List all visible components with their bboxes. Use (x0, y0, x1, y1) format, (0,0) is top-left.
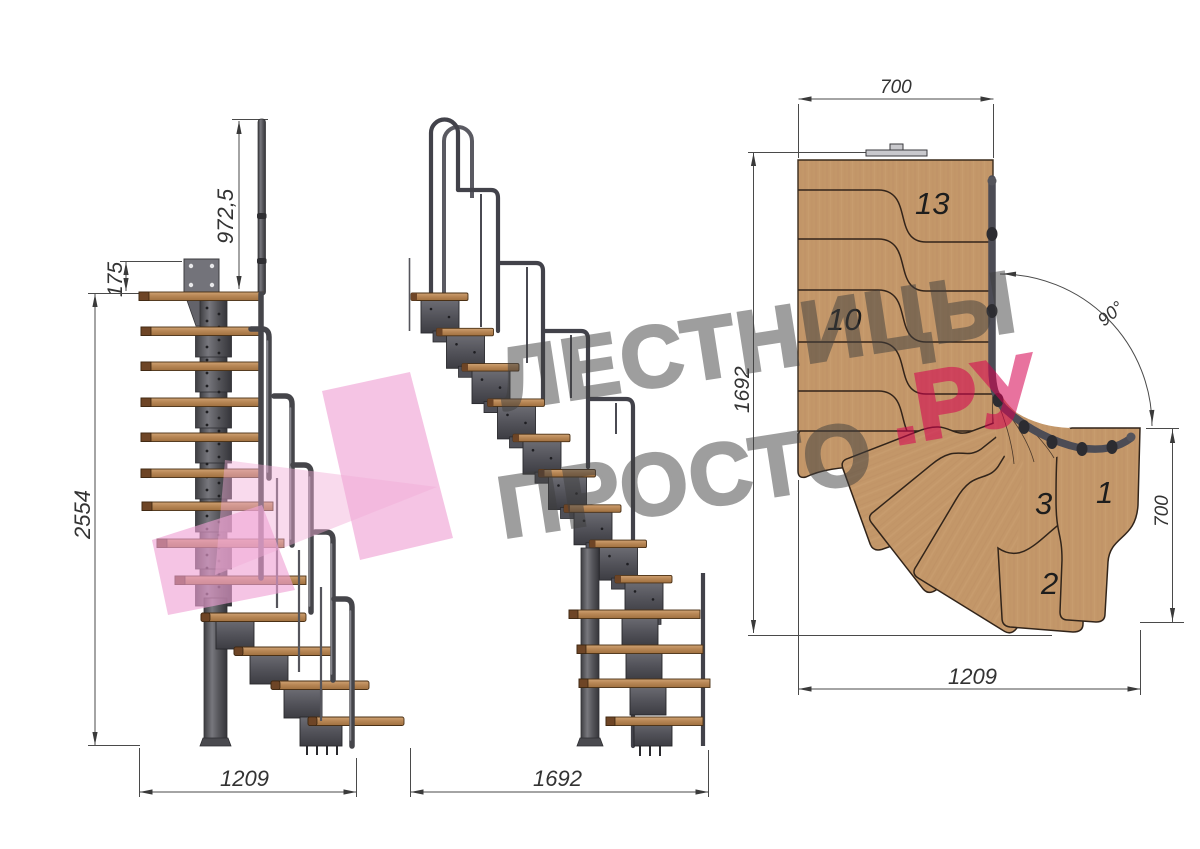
svg-text:13: 13 (915, 186, 949, 221)
svg-text:2: 2 (1040, 566, 1058, 601)
svg-text:1: 1 (1096, 475, 1113, 510)
svg-text:1692: 1692 (533, 766, 582, 791)
svg-text:1209: 1209 (220, 766, 269, 791)
svg-text:700: 700 (1152, 495, 1173, 527)
svg-text:1209: 1209 (948, 664, 997, 689)
svg-text:700: 700 (880, 77, 912, 98)
svg-text:175: 175 (104, 262, 127, 297)
svg-text:2554: 2554 (70, 490, 95, 540)
svg-text:3: 3 (1035, 486, 1052, 521)
svg-text:972,5: 972,5 (213, 188, 238, 244)
